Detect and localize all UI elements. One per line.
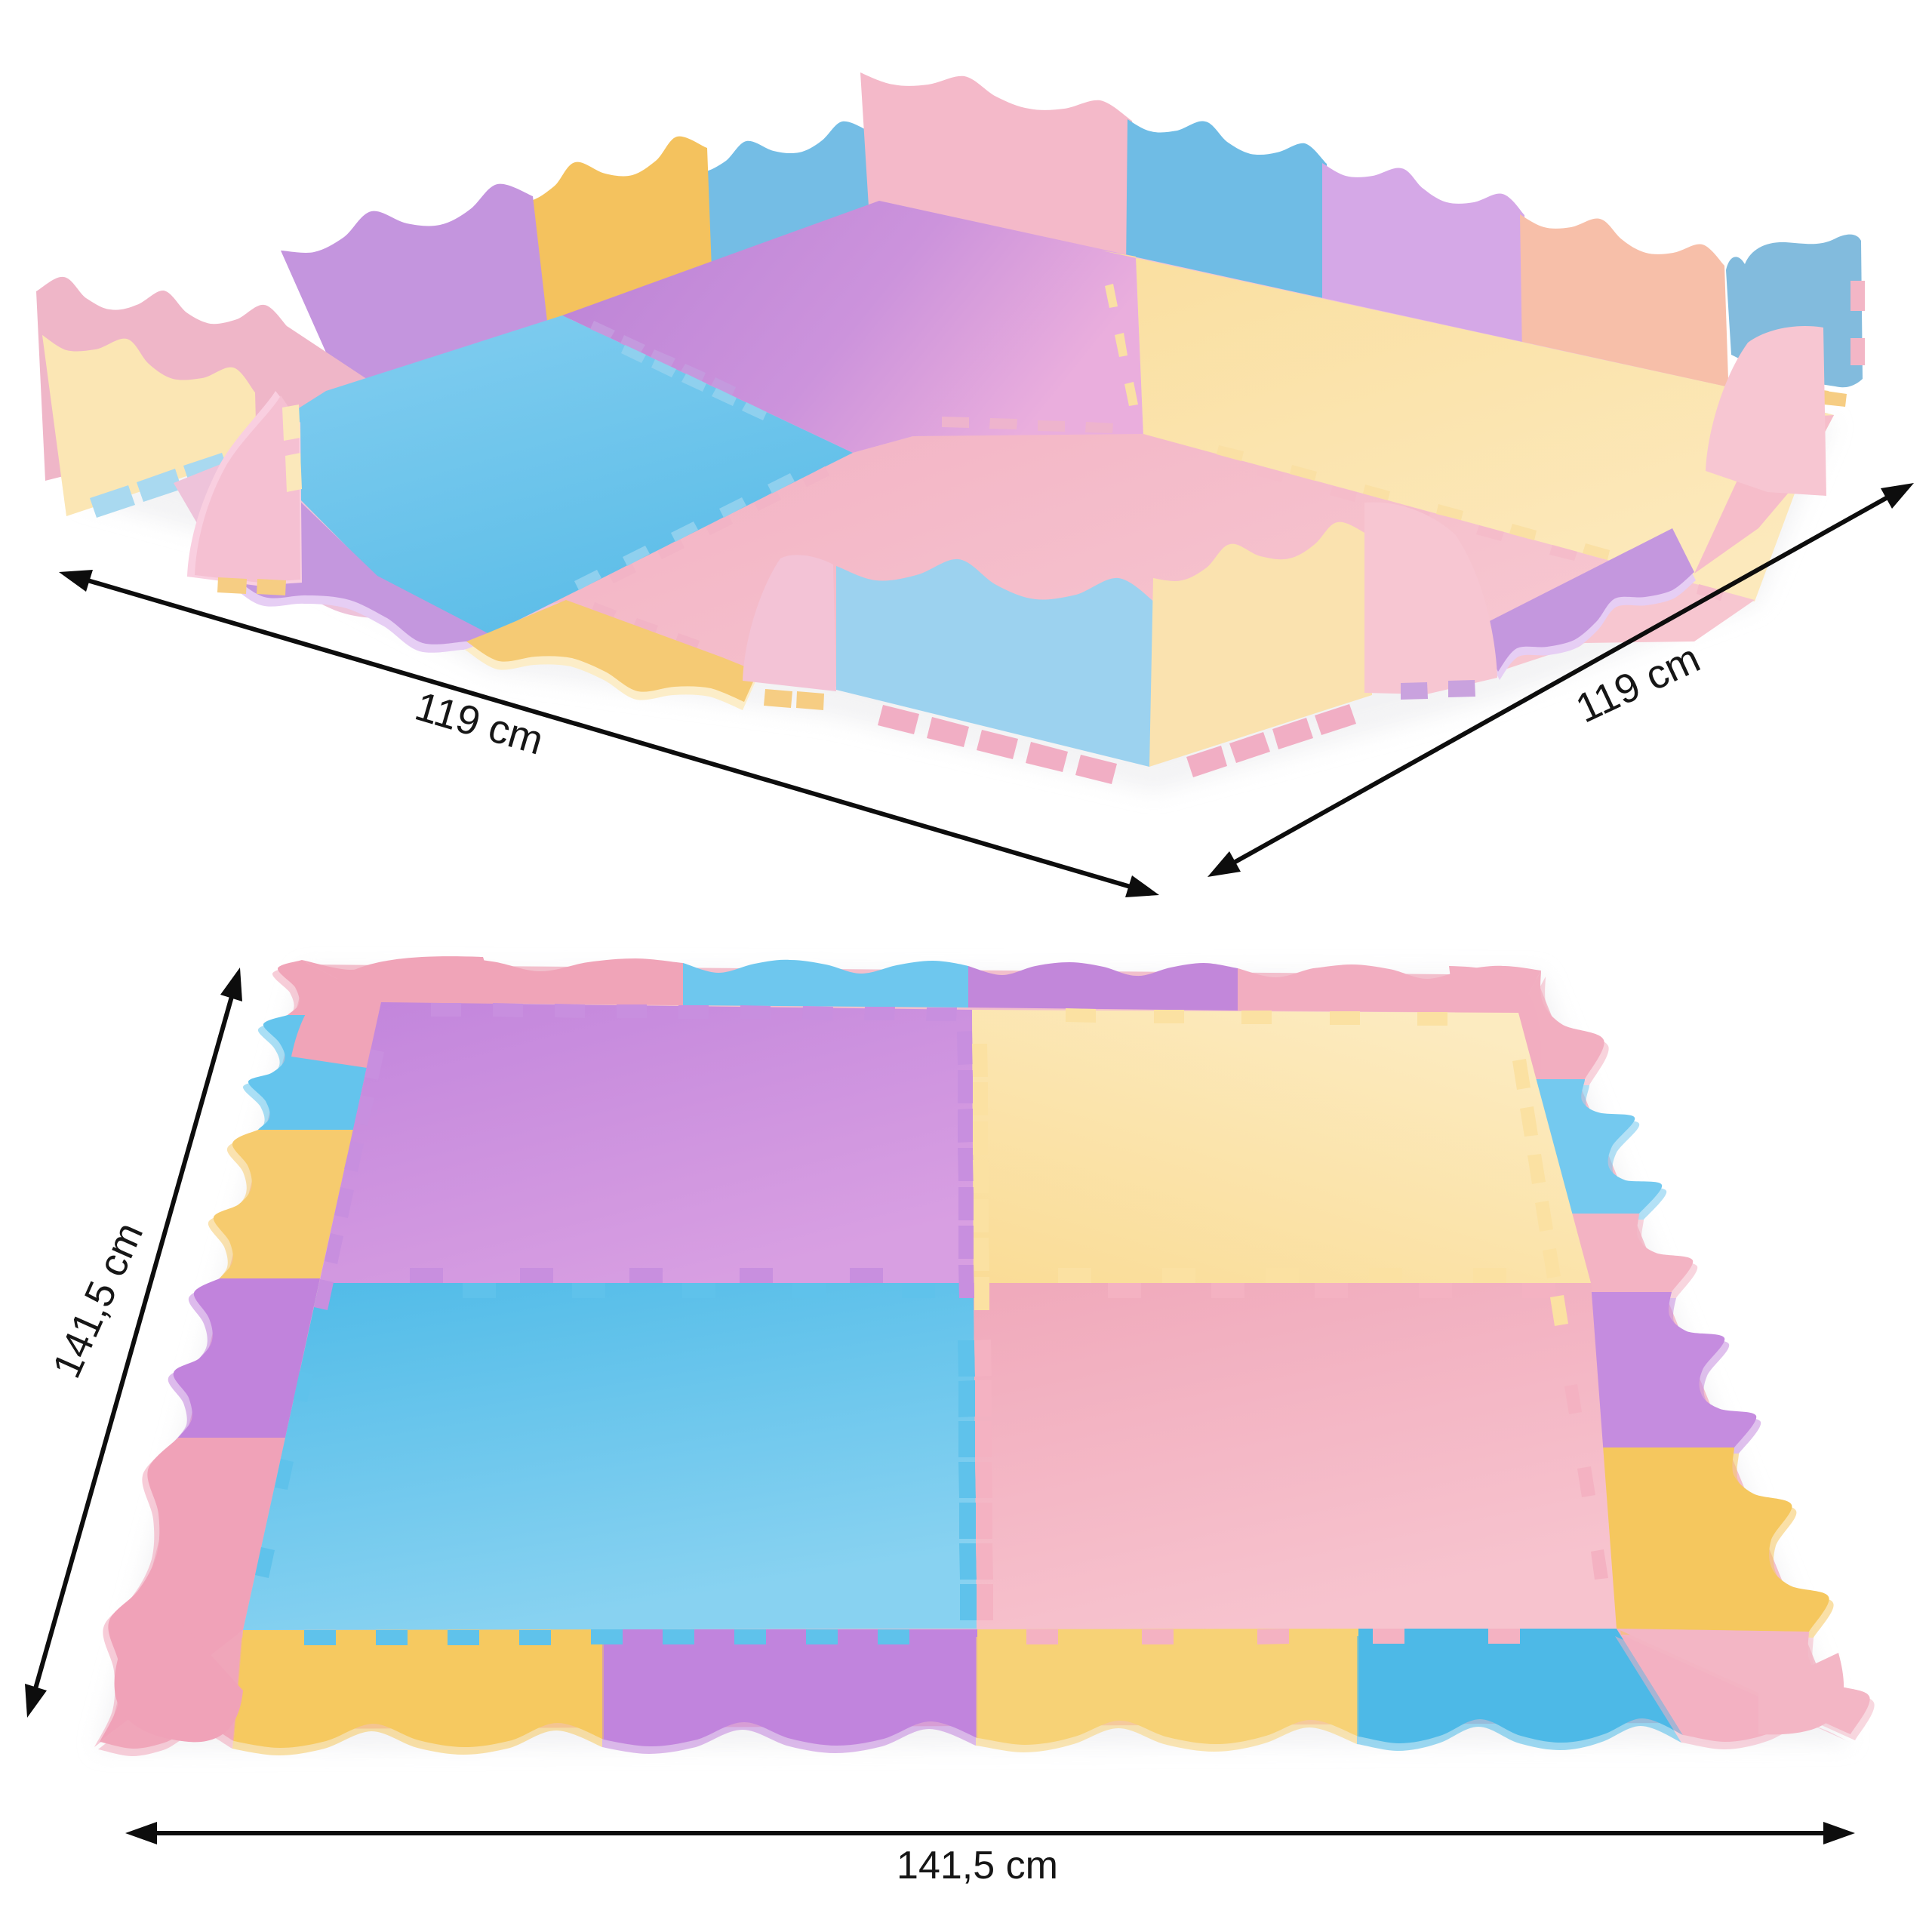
svg-text:141,5 cm: 141,5 cm: [897, 1844, 1058, 1887]
